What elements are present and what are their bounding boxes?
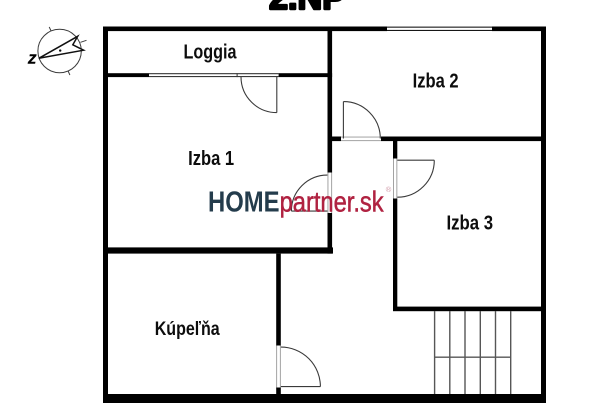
svg-text:2.NP: 2.NP	[269, 0, 345, 17]
svg-text:Izba 1: Izba 1	[188, 148, 234, 170]
svg-text:®: ®	[386, 185, 392, 194]
svg-text:HOME: HOME	[208, 186, 280, 218]
svg-text:partner.sk: partner.sk	[280, 186, 385, 218]
svg-text:Kúpeľňa: Kúpeľňa	[155, 318, 220, 340]
svg-text:Izba 3: Izba 3	[447, 212, 494, 234]
svg-text:Z: Z	[27, 53, 37, 67]
svg-text:Loggia: Loggia	[184, 41, 238, 63]
svg-text:Izba 2: Izba 2	[413, 71, 459, 93]
